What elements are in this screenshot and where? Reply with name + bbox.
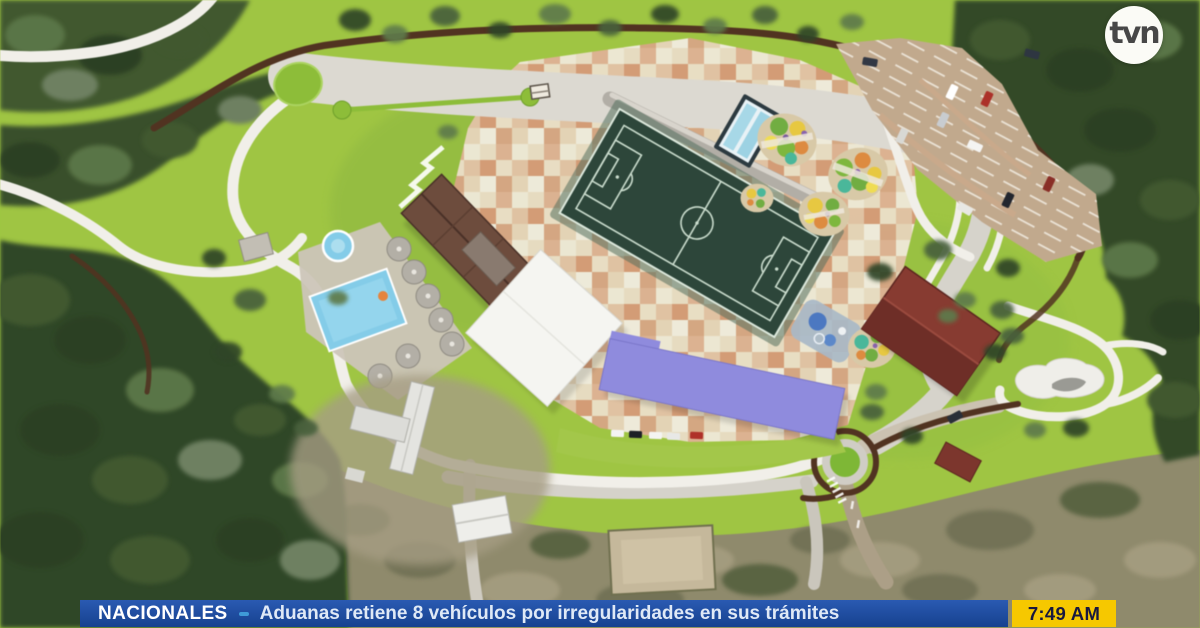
gate-booth [530, 84, 550, 99]
channel-logo: tvn [1105, 6, 1163, 64]
service-buildings [290, 375, 550, 565]
pool-float [378, 291, 388, 301]
channel-logo-text: tvn [1109, 16, 1158, 51]
ticker-separator-icon [239, 612, 249, 616]
tv-frame: tvn NACIONALES Aduanas retiene 8 vehícul… [0, 0, 1200, 628]
ticker-headline: Aduanas retiene 8 vehículos por irregula… [260, 603, 840, 625]
dirt-field [608, 525, 715, 594]
masterplan-aerial-map [0, 0, 1200, 628]
ticker-category: NACIONALES [98, 603, 228, 625]
clock-badge: 7:49 AM [1012, 600, 1116, 627]
clock-time: 7:49 AM [1028, 603, 1100, 625]
news-ticker: NACIONALES Aduanas retiene 8 vehículos p… [80, 600, 1008, 627]
